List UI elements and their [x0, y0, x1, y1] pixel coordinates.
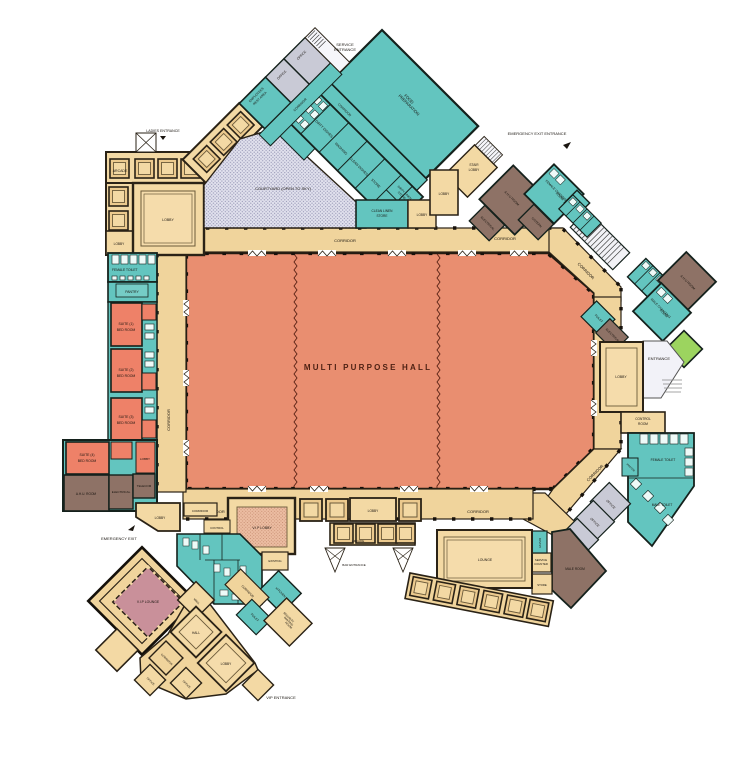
svg-text:EMERGENCY EXIT: EMERGENCY EXIT	[101, 536, 137, 541]
svg-text:LOBBY: LOBBY	[221, 662, 233, 666]
svg-text:LOBBY: LOBBY	[417, 213, 429, 217]
svg-text:HALL: HALL	[192, 631, 200, 635]
svg-text:LOBBY: LOBBY	[155, 516, 167, 520]
svg-text:LOBBY: LOBBY	[615, 375, 627, 379]
svg-text:CORRIDOR: CORRIDOR	[192, 509, 209, 513]
svg-text:FEMALE TOILET: FEMALE TOILET	[112, 268, 138, 272]
svg-text:LOBBY: LOBBY	[114, 242, 126, 246]
svg-text:CORRIDOR: CORRIDOR	[467, 509, 489, 514]
svg-text:ARCADE: ARCADE	[113, 169, 128, 173]
svg-text:SUITE (4): SUITE (4)	[79, 453, 94, 457]
svg-text:V.I.P LOBBY: V.I.P LOBBY	[252, 526, 272, 530]
svg-text:ARCADE: ARCADE	[352, 539, 365, 543]
svg-text:MULTI PURPOSE HALL: MULTI PURPOSE HALL	[304, 363, 432, 372]
svg-text:BED ROOM: BED ROOM	[117, 328, 136, 332]
svg-text:SUITE (2): SUITE (2)	[118, 368, 133, 372]
svg-text:PANTRY: PANTRY	[125, 290, 139, 294]
svg-text:ELECTRICAL: ELECTRICAL	[112, 490, 131, 494]
svg-text:EXISTING: EXISTING	[268, 559, 281, 563]
svg-text:TELECOM: TELECOM	[137, 484, 152, 488]
svg-text:LOBBY: LOBBY	[140, 457, 150, 461]
svg-text:CORRIDOR: CORRIDOR	[494, 236, 516, 241]
svg-text:BED ROOM: BED ROOM	[117, 374, 136, 378]
svg-text:LADIES ENTRANCE: LADIES ENTRANCE	[146, 129, 180, 133]
svg-text:V.I.P LOUNGE: V.I.P LOUNGE	[137, 600, 160, 604]
svg-text:COUNTER: COUNTER	[534, 562, 548, 566]
svg-text:FEMALE TOILET: FEMALE TOILET	[651, 458, 676, 462]
svg-text:CONTROL: CONTROL	[210, 526, 224, 530]
svg-text:CORRIDOR: CORRIDOR	[334, 238, 356, 243]
svg-text:LOUNGE: LOUNGE	[478, 558, 493, 562]
svg-text:SUITE (3): SUITE (3)	[118, 415, 133, 419]
svg-text:A.H.U. ROOM: A.H.U. ROOM	[76, 492, 97, 496]
svg-text:CLEAN LINEN: CLEAN LINEN	[372, 209, 394, 213]
svg-text:ROOM: ROOM	[638, 422, 648, 426]
svg-text:ENTRANCE: ENTRANCE	[334, 47, 356, 52]
svg-text:ENTRANCE: ENTRANCE	[648, 356, 670, 361]
svg-text:STORE: STORE	[377, 214, 388, 218]
svg-text:BED ROOM: BED ROOM	[117, 421, 136, 425]
svg-text:SUITE (1): SUITE (1)	[118, 322, 133, 326]
svg-text:CORRIDOR: CORRIDOR	[166, 409, 171, 431]
svg-text:LOBBY: LOBBY	[162, 218, 174, 222]
svg-text:MALE ROOM: MALE ROOM	[565, 567, 585, 571]
svg-text:VIP ENTRANCE: VIP ENTRANCE	[266, 695, 296, 700]
svg-text:COURTYARD (OPEN TO SKY): COURTYARD (OPEN TO SKY)	[255, 186, 311, 191]
svg-text:LOBBY: LOBBY	[469, 168, 481, 172]
svg-text:CONTROL: CONTROL	[635, 417, 651, 421]
svg-text:EMERGENCY EXIT ENTRANCE: EMERGENCY EXIT ENTRANCE	[508, 131, 567, 136]
svg-text:MALE TOILET: MALE TOILET	[652, 503, 673, 507]
svg-text:BAR ENTRANCE: BAR ENTRANCE	[342, 563, 366, 567]
svg-text:LOBBY: LOBBY	[368, 509, 380, 513]
svg-text:STORE: STORE	[537, 583, 547, 587]
svg-text:BED ROOM: BED ROOM	[78, 459, 97, 463]
svg-text:STAIR: STAIR	[469, 163, 479, 167]
svg-text:LOBBY: LOBBY	[439, 192, 451, 196]
svg-text:PANTRY: PANTRY	[538, 538, 542, 549]
